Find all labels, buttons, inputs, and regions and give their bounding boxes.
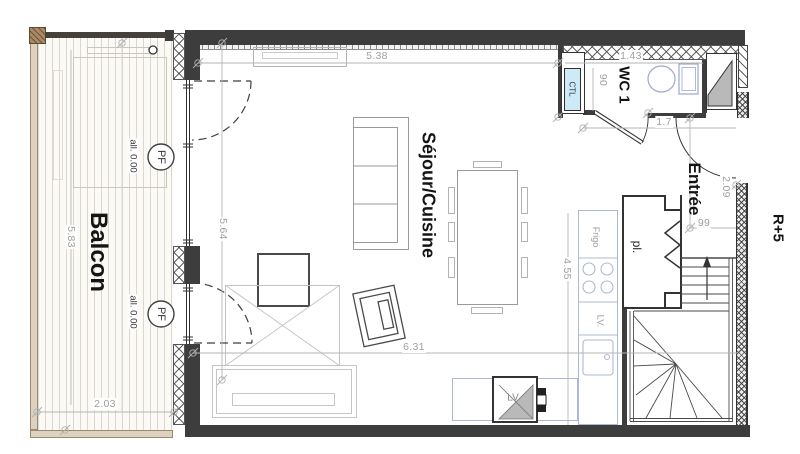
plan-linework	[0, 0, 800, 454]
window-tag-1: PF	[155, 150, 167, 164]
dim-hall-width: 99	[697, 217, 711, 229]
closet-label: pl.	[630, 241, 644, 254]
entry-door	[676, 61, 736, 178]
stair-direction-arrow	[703, 256, 711, 300]
appliance-label: LV	[507, 393, 519, 404]
window-tag-circles	[148, 144, 174, 327]
room-label-entry: Entrée	[684, 163, 704, 216]
sink-icon	[583, 340, 613, 375]
dim-door-width: 1.7	[655, 116, 673, 128]
sill-level-1: all. 0.00	[128, 138, 139, 173]
toilet-icon	[648, 64, 698, 94]
dishwasher-label: LV.	[595, 315, 606, 328]
room-label-balcony: Balcon	[84, 212, 112, 292]
dim-top-width: 5.38	[365, 50, 389, 62]
dim-room-height: 5.64	[217, 217, 229, 241]
dim-kitchen-run: 4.55	[561, 257, 573, 281]
room-label-living: Séjour/Cuisine	[418, 132, 439, 258]
closet-zigzag	[665, 221, 680, 268]
staircase	[630, 258, 736, 422]
sofa-cushion-lines	[353, 166, 398, 204]
dim-wc-depth: 90	[597, 73, 609, 87]
rug-diagonals	[225, 285, 340, 366]
floor-plan-canvas: Balcon Séjour/Cuisine WC 1 Entrée R+5 pl…	[0, 0, 800, 454]
sill-level-2: all. 0.00	[128, 294, 139, 329]
boiler-detail	[499, 385, 546, 419]
dim-balcony-width: 2.03	[93, 398, 117, 410]
duct-label: CTL	[568, 81, 577, 96]
dim-entry-depth: 2.09	[720, 175, 732, 199]
fridge-label: Frigo	[591, 227, 601, 248]
window-glazing	[183, 80, 193, 344]
dim-balcony-length: 5.83	[65, 225, 77, 249]
wc-door	[593, 111, 648, 145]
dim-room-width: 6.31	[402, 341, 426, 353]
room-label-wc: WC 1	[616, 66, 633, 104]
survey-markers	[32, 38, 741, 435]
window-tag-2: PF	[155, 307, 167, 321]
drain-circle	[149, 46, 157, 54]
floor-level-label: R+5	[770, 214, 787, 242]
dim-wc-width: 1.43	[619, 50, 643, 62]
armchair-rotated	[353, 285, 405, 347]
